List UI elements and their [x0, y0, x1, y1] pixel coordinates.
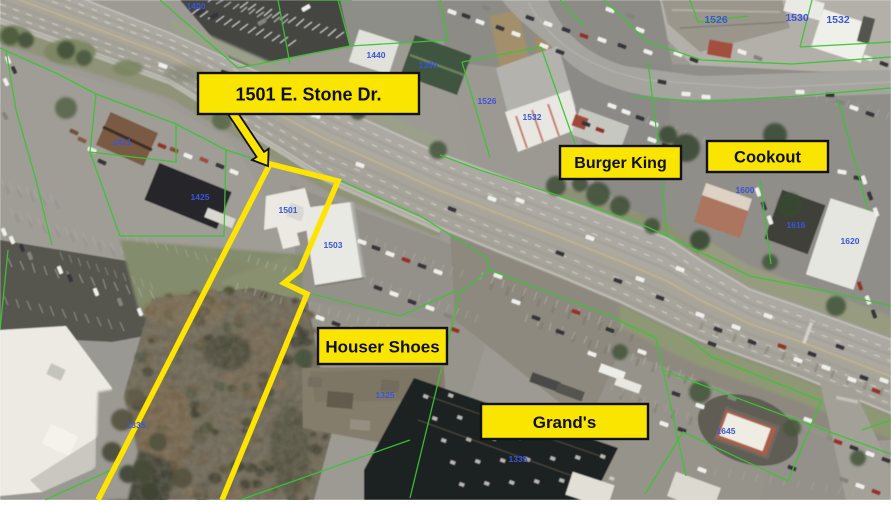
svg-text:1501: 1501	[279, 205, 298, 215]
svg-text:1425: 1425	[191, 192, 210, 202]
svg-text:1300: 1300	[419, 60, 438, 70]
svg-text:1325: 1325	[376, 390, 395, 400]
svg-text:1616: 1616	[787, 220, 806, 230]
svg-text:1526: 1526	[478, 96, 497, 106]
svg-text:1335: 1335	[509, 454, 528, 464]
svg-text:Houser Shoes: Houser Shoes	[325, 338, 439, 357]
svg-text:1421: 1421	[113, 137, 132, 147]
svg-text:1335: 1335	[127, 420, 146, 430]
svg-text:1526: 1526	[704, 14, 728, 26]
svg-text:Grand's: Grand's	[533, 413, 597, 432]
svg-text:1645: 1645	[717, 426, 736, 436]
svg-text:Cookout: Cookout	[734, 149, 801, 167]
svg-text:1532: 1532	[523, 112, 542, 122]
svg-text:1600: 1600	[736, 185, 755, 195]
svg-text:1532: 1532	[826, 14, 850, 26]
svg-text:1440: 1440	[367, 50, 386, 60]
svg-text:1620: 1620	[841, 236, 860, 246]
svg-text:1530: 1530	[785, 12, 809, 24]
svg-text:1501 E. Stone Dr.: 1501 E. Stone Dr.	[235, 85, 381, 105]
svg-text:1503: 1503	[324, 240, 343, 250]
svg-text:Burger King: Burger King	[574, 155, 666, 172]
svg-text:1400: 1400	[187, 1, 206, 11]
